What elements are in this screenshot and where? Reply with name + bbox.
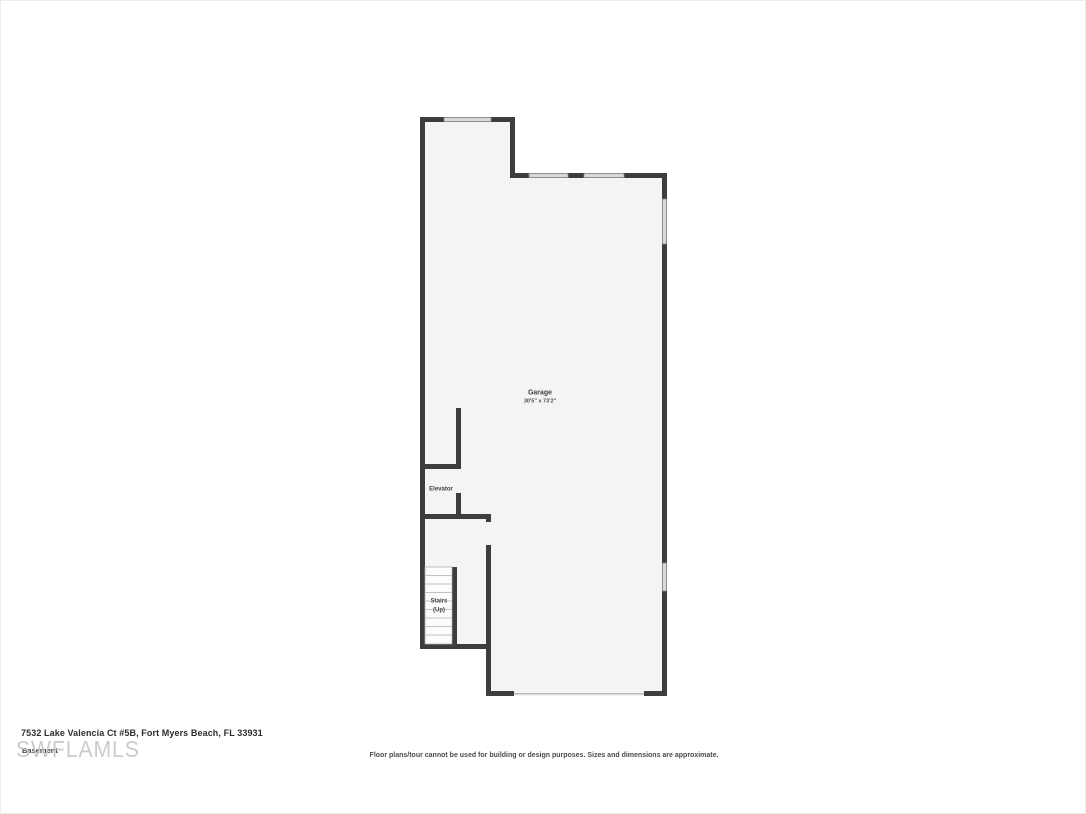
floor-area [422, 117, 665, 696]
floor-plan-drawing [1, 1, 1086, 814]
garage-door-opening [514, 693, 644, 695]
mls-watermark: SWFLAMLS [16, 736, 140, 763]
wall-left [420, 117, 425, 649]
wall-stairs-divider-lower [486, 545, 491, 696]
wall-bottom-right-segment [644, 691, 667, 696]
garage-room-label: Garage [528, 390, 552, 399]
floor-plan-page: Garage 30'5" x 73'2" Elevator Stairs (Up… [0, 0, 1086, 814]
garage-dimensions-label: 30'5" x 73'2" [524, 399, 556, 406]
wall-elevator-bottom [420, 514, 491, 519]
elevator-room-label: Elevator [429, 486, 453, 494]
stairs-room-label: Stairs [431, 598, 448, 606]
window-right-upper [663, 199, 667, 244]
wall-stub-above-elevator [456, 408, 461, 469]
window-right-lower [663, 563, 667, 591]
window-top-mid-2 [584, 174, 624, 178]
disclaimer-text: Floor plans/tour cannot be used for buil… [370, 752, 719, 759]
stairs-direction-label: (Up) [433, 607, 445, 615]
wall-elevator-top [420, 464, 461, 469]
wall-stairs-inner [452, 567, 457, 649]
window-top-left [444, 118, 491, 122]
window-top-mid-1 [529, 174, 568, 178]
wall-notch-right [510, 117, 515, 178]
wall-right [662, 173, 667, 696]
